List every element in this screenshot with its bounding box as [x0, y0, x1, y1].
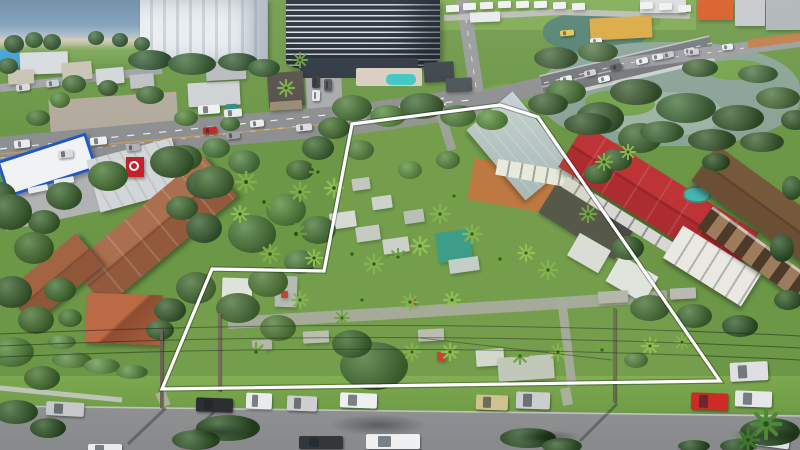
power-pole: [613, 308, 616, 402]
power-pole: [160, 330, 163, 408]
power-pole: [218, 313, 221, 391]
aerial-photo-scene: [0, 0, 800, 450]
power-poles: [0, 0, 800, 450]
